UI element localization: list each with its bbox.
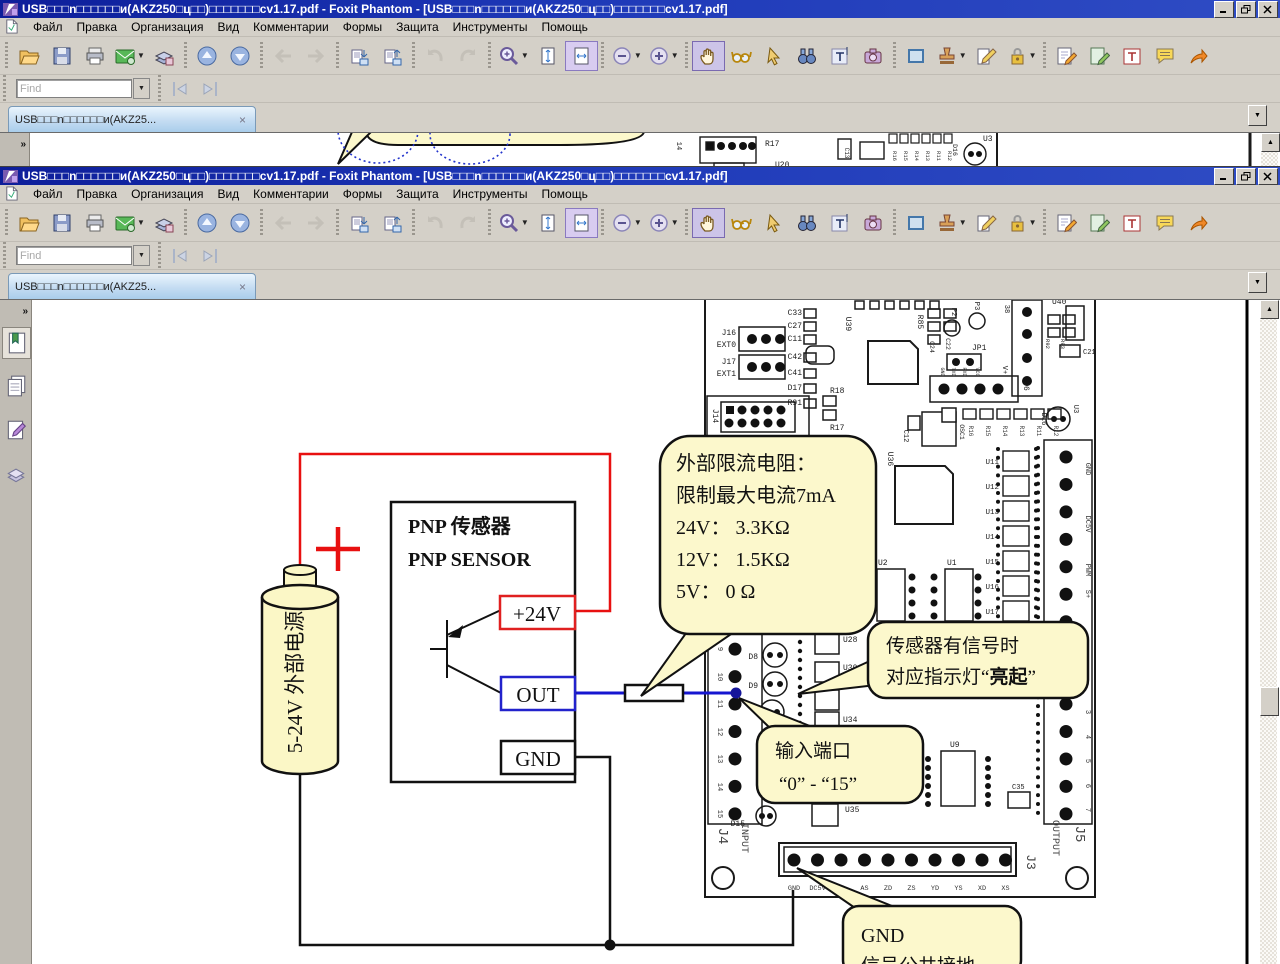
- find-previous-button[interactable]: [166, 245, 194, 267]
- toolbar-grip[interactable]: [336, 42, 339, 70]
- toolbar-grip[interactable]: [5, 209, 8, 237]
- tab-label: USB□□□n□□□□□□и(AKZ25...: [15, 281, 236, 293]
- encrypt-button[interactable]: ▼: [1003, 208, 1040, 238]
- tab-close-icon[interactable]: ×: [236, 113, 249, 127]
- encrypt-button[interactable]: ▼: [1003, 41, 1040, 71]
- note-comment-button[interactable]: [1149, 208, 1182, 238]
- foxit-app-icon: [3, 169, 19, 184]
- find-bar: ▼: [0, 75, 1280, 103]
- page-down-button[interactable]: [224, 41, 257, 71]
- undo-icon: [424, 212, 446, 234]
- scrollbar-thumb[interactable]: [1260, 687, 1279, 716]
- svg-text:GND: GND: [1083, 463, 1091, 476]
- note-comment-button[interactable]: [1149, 41, 1182, 71]
- wire-junction-dot: [605, 940, 616, 951]
- restore-button[interactable]: [1236, 1, 1256, 18]
- titlebar[interactable]: USB□□□n□□□□□□и(AKZ250□ц□□)□□□□□□□cv1.17.…: [0, 0, 1280, 18]
- fit-width-icon: [570, 45, 592, 67]
- pencil-button[interactable]: [970, 208, 1003, 238]
- typewriter-icon: [1121, 45, 1143, 67]
- zoom-out-icon: [611, 212, 633, 234]
- typewriter-button[interactable]: [1116, 208, 1149, 238]
- insert-pages-button[interactable]: [343, 41, 376, 71]
- svg-text:YD: YD: [931, 885, 939, 893]
- panel-pages-button[interactable]: [2, 371, 29, 401]
- svg-text:5V： 0 Ω: 5V： 0 Ω: [676, 581, 755, 603]
- screen: { "app": { "title": "USB□□□n□□□□□□и(AKZ2…: [0, 0, 1280, 960]
- toolbar-grip[interactable]: [412, 209, 415, 237]
- print-button[interactable]: [78, 208, 111, 238]
- vertical-scrollbar[interactable]: ▲: [1261, 133, 1278, 171]
- svg-text:R14: R14: [913, 151, 920, 162]
- toolbar-grip[interactable]: [260, 42, 263, 70]
- svg-text:C11: C11: [788, 335, 803, 344]
- pdf-page-strip: 14 R17 U20 C13 D16 U3 R16R15R14R13R11R12: [30, 133, 1258, 171]
- redo-icon: [457, 45, 479, 67]
- extract-pages-button[interactable]: [376, 41, 409, 71]
- panel-attachments-button[interactable]: [2, 459, 29, 489]
- svg-text:U39: U39: [843, 317, 852, 332]
- reading-mode-icon: [730, 212, 752, 234]
- svg-text:PWM: PWM: [1083, 564, 1091, 577]
- edit-text-icon: [1055, 45, 1077, 67]
- share-button[interactable]: [1182, 208, 1215, 238]
- svg-text:外部限流电阻：: 外部限流电阻：: [676, 452, 816, 475]
- svg-text:C21: C21: [1083, 349, 1096, 357]
- toolbar-grip[interactable]: [893, 209, 896, 237]
- prev-view-icon: [272, 45, 294, 67]
- svg-text:XD: XD: [978, 885, 986, 893]
- window-title: USB□□□n□□□□□□и(AKZ250□ц□□)□□□□□□□cv1.17.…: [22, 2, 1212, 16]
- select-text-icon: [829, 212, 851, 234]
- comments-icon: [4, 418, 28, 442]
- zoom-in-icon: [648, 212, 670, 234]
- grip-handle[interactable]: [158, 242, 161, 270]
- menu-7[interactable]: Защита: [389, 186, 446, 202]
- link-button[interactable]: [900, 41, 933, 71]
- open-icon: [18, 212, 40, 234]
- svg-text:R11: R11: [935, 151, 942, 162]
- menu-1[interactable]: Файл: [26, 19, 70, 35]
- svg-text:V+: V+: [1000, 366, 1008, 374]
- grip-handle[interactable]: [3, 242, 6, 270]
- email-button[interactable]: ▼: [111, 41, 148, 71]
- svg-text:传感器有信号时: 传感器有信号时: [886, 635, 1019, 657]
- svg-text:R93: R93: [1059, 339, 1066, 349]
- menu-6[interactable]: Формы: [336, 186, 389, 202]
- scroll-up-button[interactable]: ▲: [1261, 133, 1280, 152]
- svg-text:ZS: ZS: [907, 885, 915, 893]
- toolbar-grip[interactable]: [488, 209, 491, 237]
- callout-input-ports[interactable]: 输入端口 “0” - “15”: [739, 698, 923, 803]
- minimize-button[interactable]: [1214, 168, 1234, 185]
- toolbar-grip[interactable]: [893, 42, 896, 70]
- zoom-out-button[interactable]: ▼: [608, 208, 645, 238]
- edit-text-icon: [1055, 212, 1077, 234]
- svg-text:R16: R16: [891, 151, 898, 161]
- prev-view-button[interactable]: [267, 208, 300, 238]
- toolbar-grip[interactable]: [601, 42, 604, 70]
- note-comment-icon: [1154, 212, 1176, 234]
- search-button[interactable]: [791, 208, 824, 238]
- pencil-icon: [975, 212, 997, 234]
- email-button[interactable]: ▼: [111, 208, 148, 238]
- email-icon: [114, 212, 136, 234]
- svg-text:C42: C42: [788, 353, 803, 362]
- svg-text:15: 15: [715, 810, 723, 818]
- stamp-icon: [936, 212, 958, 234]
- toolbar: ▼▼▼▼▼▼: [0, 37, 1280, 75]
- svg-text:C27: C27: [788, 322, 803, 331]
- svg-text:R18: R18: [830, 387, 845, 396]
- dropdown-arrow-icon[interactable]: ▼: [671, 51, 679, 60]
- svg-text:R13: R13: [1018, 426, 1025, 437]
- search-button[interactable]: [791, 41, 824, 71]
- svg-text:R11: R11: [1035, 426, 1042, 437]
- toolbar-overflow-button[interactable]: ▼: [1248, 272, 1267, 293]
- select-annotation-button[interactable]: [758, 41, 791, 71]
- link-icon: [905, 212, 927, 234]
- print-icon: [84, 45, 106, 67]
- pdf-view: »: [0, 299, 1280, 964]
- next-view-icon: [305, 212, 327, 234]
- link-button[interactable]: [900, 208, 933, 238]
- svg-text:C35: C35: [1012, 784, 1025, 792]
- tab-close-icon[interactable]: ×: [236, 280, 249, 294]
- close-button[interactable]: [1258, 168, 1278, 185]
- svg-text:R12: R12: [946, 151, 953, 161]
- pdf-page: J16 EXT0 J17 EXT1 U39 J14 R18 R17 R85 C2…: [32, 300, 1255, 964]
- share-icon: [1187, 45, 1209, 67]
- svg-text:13: 13: [715, 755, 723, 763]
- menu-8[interactable]: Инструменты: [446, 19, 535, 35]
- dropdown-arrow-icon[interactable]: ▼: [521, 218, 529, 227]
- plus-symbol: [316, 527, 360, 571]
- menu-5[interactable]: Комментарии: [246, 19, 336, 35]
- document-tab[interactable]: USB□□□n□□□□□□и(AKZ25... ×: [8, 273, 256, 299]
- fit-width-button[interactable]: [565, 41, 598, 71]
- callout-gnd[interactable]: GND 信号公共接地: [797, 868, 1021, 964]
- page-up-button[interactable]: [191, 208, 224, 238]
- select-text-button[interactable]: [824, 208, 857, 238]
- encrypt-icon: [1006, 45, 1028, 67]
- zoom-in-button[interactable]: ▼: [645, 41, 682, 71]
- menu-4[interactable]: Вид: [210, 186, 246, 202]
- menu-bar: ФайлПравкаОрганизацияВидКомментарииФормы…: [0, 18, 1280, 37]
- svg-text:J16: J16: [722, 329, 737, 338]
- svg-text:R15: R15: [984, 426, 991, 437]
- svg-text:14: 14: [674, 142, 682, 150]
- page-up-button[interactable]: [191, 41, 224, 71]
- svg-text:XS: XS: [1001, 885, 1009, 893]
- dropdown-arrow-icon[interactable]: ▼: [959, 218, 967, 227]
- dropdown-arrow-icon[interactable]: ▼: [1029, 51, 1037, 60]
- save-icon: [51, 45, 73, 67]
- vertical-scrollbar[interactable]: ▲: [1260, 300, 1277, 964]
- insert-pages-icon: [348, 45, 370, 67]
- menu-2[interactable]: Правка: [70, 19, 125, 35]
- menu-9[interactable]: Помощь: [534, 19, 594, 35]
- svg-text:OUT: OUT: [516, 683, 559, 707]
- panel-bookmarks-button[interactable]: [2, 327, 31, 359]
- toolbar-grip[interactable]: [184, 209, 187, 237]
- toolbar-grip[interactable]: [1043, 209, 1046, 237]
- menu-1[interactable]: Файл: [26, 186, 70, 202]
- svg-text:9: 9: [715, 647, 723, 651]
- toolbar-grip[interactable]: [488, 42, 491, 70]
- dropdown-arrow-icon[interactable]: ▼: [671, 218, 679, 227]
- zoom-in-button[interactable]: ▼: [645, 208, 682, 238]
- toolbar-grip[interactable]: [184, 42, 187, 70]
- typewriter-button[interactable]: [1116, 41, 1149, 71]
- search-icon: [796, 45, 818, 67]
- svg-text:OUTPUT: OUTPUT: [1049, 820, 1060, 856]
- next-view-button[interactable]: [300, 41, 333, 71]
- find-bar: ▼: [0, 242, 1280, 270]
- panel-comments-button[interactable]: [2, 415, 29, 445]
- snapshot-button[interactable]: [857, 208, 890, 238]
- open-button[interactable]: [12, 41, 45, 71]
- svg-text:S+: S+: [1083, 590, 1091, 598]
- attachments-icon: [4, 462, 28, 486]
- find-previous-button[interactable]: [166, 78, 194, 100]
- menu-8[interactable]: Инструменты: [446, 186, 535, 202]
- toolbar-grip[interactable]: [5, 42, 8, 70]
- page-up-icon: [196, 212, 218, 234]
- hand-button[interactable]: [692, 41, 725, 71]
- svg-text:U35: U35: [845, 806, 860, 815]
- svg-text:INPUT: INPUT: [738, 823, 749, 853]
- svg-text:J17: J17: [722, 358, 737, 367]
- redo-button[interactable]: [452, 208, 485, 238]
- share-icon: [1187, 212, 1209, 234]
- svg-text:R17: R17: [765, 140, 780, 149]
- hand-button[interactable]: [692, 208, 725, 238]
- prev-view-button[interactable]: [267, 41, 300, 71]
- stamp-button[interactable]: ▼: [933, 41, 970, 71]
- restore-button[interactable]: [1236, 168, 1256, 185]
- svg-text:ZD: ZD: [884, 885, 892, 893]
- search-icon: [796, 212, 818, 234]
- scan-button[interactable]: [148, 41, 181, 71]
- zoom-in-icon: [648, 45, 670, 67]
- next-view-button[interactable]: [300, 208, 333, 238]
- svg-text:+24V: +24V: [513, 602, 561, 626]
- svg-text:R13: R13: [924, 151, 931, 161]
- reading-mode-button[interactable]: [725, 41, 758, 71]
- svg-text:TXD: TXD: [950, 367, 956, 376]
- snapshot-button[interactable]: [857, 41, 890, 71]
- dropdown-arrow-icon[interactable]: ▼: [634, 51, 642, 60]
- toolbar-grip[interactable]: [601, 209, 604, 237]
- titlebar[interactable]: USB□□□n□□□□□□и(AKZ250□ц□□)□□□□□□□cv1.17.…: [0, 167, 1280, 185]
- edit-object-button[interactable]: [1083, 41, 1116, 71]
- dropdown-arrow-icon[interactable]: ▼: [959, 51, 967, 60]
- menu-3[interactable]: Организация: [124, 19, 210, 35]
- menu-7[interactable]: Защита: [389, 19, 446, 35]
- svg-text:GND: GND: [861, 925, 904, 947]
- reading-mode-icon: [730, 45, 752, 67]
- pencil-button[interactable]: [970, 41, 1003, 71]
- select-annotation-button[interactable]: [758, 208, 791, 238]
- svg-text:U2: U2: [878, 559, 888, 568]
- minimize-button[interactable]: [1214, 1, 1234, 18]
- dropdown-arrow-icon[interactable]: ▼: [521, 51, 529, 60]
- edit-object-icon: [1088, 45, 1110, 67]
- grip-handle[interactable]: [3, 75, 6, 103]
- svg-text:R92: R92: [1044, 339, 1051, 349]
- redo-button[interactable]: [452, 41, 485, 71]
- toolbar-grip[interactable]: [412, 42, 415, 70]
- svg-text:10: 10: [715, 673, 723, 681]
- fit-page-button[interactable]: [532, 208, 565, 238]
- svg-text:PNP SENSOR: PNP SENSOR: [408, 549, 531, 571]
- svg-text:R14: R14: [1001, 426, 1008, 437]
- page-down-icon: [229, 212, 251, 234]
- svg-text:12: 12: [715, 728, 723, 736]
- svg-text:U40: U40: [1052, 300, 1067, 307]
- save-button[interactable]: [45, 208, 78, 238]
- svg-text:4: 4: [1083, 735, 1091, 739]
- select-text-button[interactable]: [824, 41, 857, 71]
- menu-2[interactable]: Правка: [70, 186, 125, 202]
- nav-panel: »: [0, 133, 30, 171]
- dropdown-arrow-icon[interactable]: ▼: [1029, 218, 1037, 227]
- svg-text:11: 11: [715, 700, 723, 708]
- reading-mode-button[interactable]: [725, 208, 758, 238]
- window-front: USB□□□n□□□□□□и(AKZ250□ц□□)□□□□□□□cv1.17.…: [0, 167, 1280, 960]
- svg-text:C24: C24: [928, 341, 935, 353]
- save-button[interactable]: [45, 41, 78, 71]
- svg-text:EXT0: EXT0: [717, 341, 736, 350]
- input-pin-dot: [731, 688, 742, 699]
- zoom-tool-button[interactable]: ▼: [495, 208, 532, 238]
- open-button[interactable]: [12, 208, 45, 238]
- toolbar-grip[interactable]: [336, 209, 339, 237]
- svg-text:AS: AS: [860, 885, 868, 893]
- svg-text:J6: J6: [1021, 381, 1030, 391]
- save-icon: [51, 212, 73, 234]
- svg-text:RXD: RXD: [961, 367, 967, 376]
- close-button[interactable]: [1258, 1, 1278, 18]
- typewriter-icon: [1121, 212, 1143, 234]
- svg-text:12V： 1.5KΩ: 12V： 1.5KΩ: [676, 549, 790, 571]
- dropdown-arrow-icon[interactable]: ▼: [634, 218, 642, 227]
- document-tab[interactable]: USB□□□n□□□□□□и(AKZ25... ×: [8, 106, 256, 132]
- toolbar-grip[interactable]: [1043, 42, 1046, 70]
- toolbar-grip[interactable]: [685, 42, 688, 70]
- expand-panel-icon[interactable]: »: [20, 139, 26, 150]
- callout-resistor[interactable]: 外部限流电阻： 限制最大电流7mA 24V： 3.3KΩ 12V： 1.5KΩ …: [641, 436, 876, 696]
- scan-button[interactable]: [148, 208, 181, 238]
- svg-text:P2: P2: [949, 308, 957, 316]
- svg-text:J5: J5: [1071, 826, 1087, 843]
- svg-text:R15: R15: [902, 151, 909, 161]
- extract-pages-icon: [381, 212, 403, 234]
- toolbar-grip[interactable]: [685, 209, 688, 237]
- grip-handle[interactable]: [158, 75, 161, 103]
- print-button[interactable]: [78, 41, 111, 71]
- zoom-out-button[interactable]: ▼: [608, 41, 645, 71]
- page-down-button[interactable]: [224, 208, 257, 238]
- svg-text:DC5V: DC5V: [1083, 516, 1091, 534]
- svg-text:D8: D8: [748, 653, 758, 662]
- tab-label: USB□□□n□□□□□□и(AKZ25...: [15, 114, 236, 126]
- dropdown-arrow-icon[interactable]: ▼: [137, 218, 145, 227]
- pdf-view-back: »: [0, 132, 1280, 171]
- svg-text:J14: J14: [710, 409, 719, 424]
- find-next-button[interactable]: [196, 78, 224, 100]
- nav-panel: »: [0, 300, 32, 964]
- toolbar-overflow-button[interactable]: ▼: [1248, 105, 1267, 126]
- edit-object-button[interactable]: [1083, 208, 1116, 238]
- toolbar-grip[interactable]: [260, 209, 263, 237]
- menu-4[interactable]: Вид: [210, 19, 246, 35]
- svg-text:U3: U3: [983, 135, 993, 144]
- svg-text:JP1: JP1: [972, 344, 987, 353]
- select-annotation-icon: [763, 45, 785, 67]
- share-button[interactable]: [1182, 41, 1215, 71]
- find-dropdown-icon[interactable]: ▼: [133, 78, 150, 99]
- document-icon: [4, 186, 20, 202]
- stamp-button[interactable]: ▼: [933, 208, 970, 238]
- page-down-icon: [229, 45, 251, 67]
- extract-pages-button[interactable]: [376, 208, 409, 238]
- edit-text-button[interactable]: [1050, 208, 1083, 238]
- menu-3[interactable]: Организация: [124, 186, 210, 202]
- svg-text:24V： 3.3KΩ: 24V： 3.3KΩ: [676, 517, 790, 539]
- hand-icon: [697, 212, 719, 234]
- scan-icon: [153, 45, 175, 67]
- undo-button[interactable]: [419, 41, 452, 71]
- svg-text:R17: R17: [830, 424, 845, 433]
- dropdown-arrow-icon[interactable]: ▼: [137, 51, 145, 60]
- find-next-button[interactable]: [196, 245, 224, 267]
- fit-width-icon: [570, 212, 592, 234]
- fit-page-icon: [537, 212, 559, 234]
- menu-5[interactable]: Комментарии: [246, 186, 336, 202]
- svg-text:5-24V 外部电源: 5-24V 外部电源: [283, 611, 307, 754]
- fit-page-button[interactable]: [532, 41, 565, 71]
- scroll-up-button[interactable]: ▲: [1260, 300, 1279, 319]
- fit-width-button[interactable]: [565, 208, 598, 238]
- window-title: USB□□□n□□□□□□и(AKZ250□ц□□)□□□□□□□cv1.17.…: [22, 169, 1212, 183]
- edit-object-icon: [1088, 212, 1110, 234]
- svg-text:7: 7: [1083, 808, 1091, 812]
- fit-page-icon: [537, 45, 559, 67]
- find-dropdown-icon[interactable]: ▼: [133, 245, 150, 266]
- insert-pages-button[interactable]: [343, 208, 376, 238]
- zoom-tool-button[interactable]: ▼: [495, 41, 532, 71]
- svg-text:14: 14: [715, 783, 723, 791]
- svg-text:R85: R85: [915, 315, 924, 330]
- email-icon: [114, 45, 136, 67]
- callout-tail[interactable]: [338, 133, 371, 164]
- zoom-tool-icon: [498, 45, 520, 67]
- find-input[interactable]: [16, 79, 132, 98]
- edit-text-button[interactable]: [1050, 41, 1083, 71]
- stamp-icon: [936, 45, 958, 67]
- undo-button[interactable]: [419, 208, 452, 238]
- menu-9[interactable]: Помощь: [534, 186, 594, 202]
- menu-6[interactable]: Формы: [336, 19, 389, 35]
- select-annotation-icon: [763, 212, 785, 234]
- find-input[interactable]: [16, 246, 132, 265]
- insert-pages-icon: [348, 212, 370, 234]
- svg-text:P3: P3: [972, 302, 980, 310]
- tab-bar: USB□□□n□□□□□□и(AKZ25... × ▼: [0, 270, 1280, 299]
- expand-panel-icon[interactable]: »: [22, 306, 28, 317]
